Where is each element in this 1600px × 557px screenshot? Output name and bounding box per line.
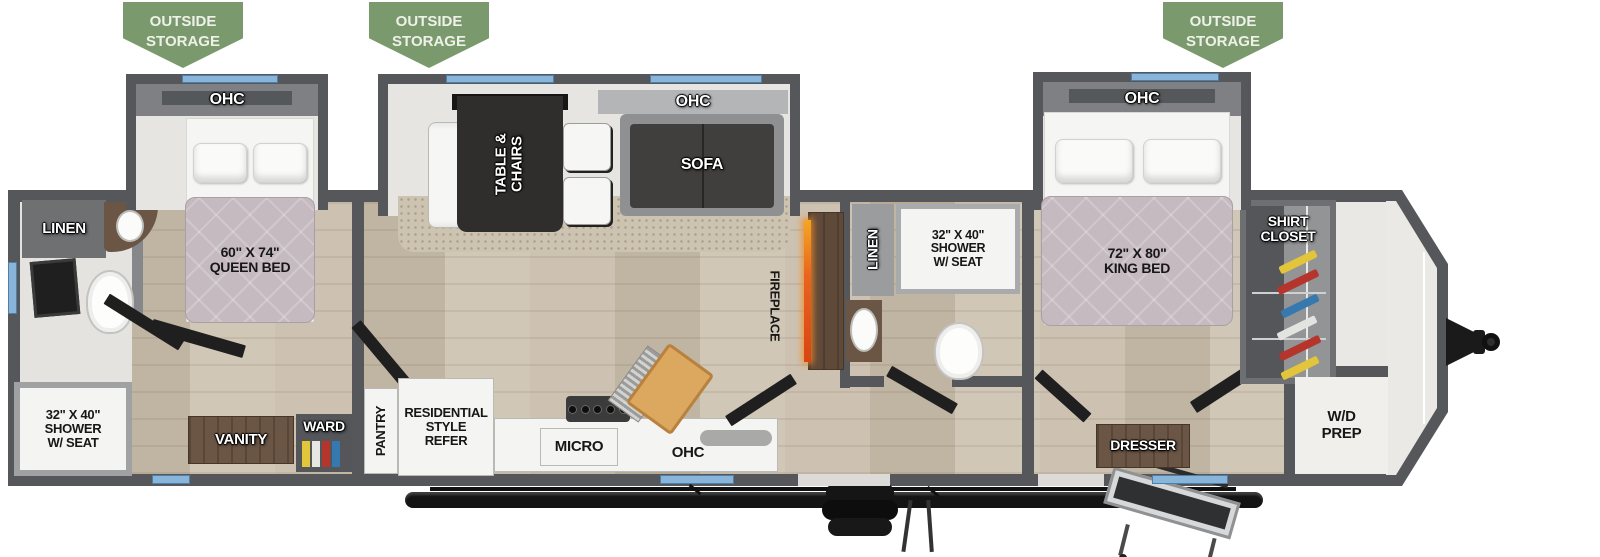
queen-bed-size: 60" X 74" (210, 245, 291, 260)
outside-storage-banner: OUTSIDE STORAGE (369, 2, 489, 68)
kitchen-ohc: OHC (648, 440, 728, 466)
dinette-table: TABLE & CHAIRS (457, 96, 563, 232)
outside-storage-banner: OUTSIDE STORAGE (123, 2, 243, 68)
bottom-window (660, 475, 734, 484)
rear-wall-window (8, 262, 17, 314)
rear-shower-size: 32" X 40" (45, 408, 102, 422)
rear-linen-cabinet: LINEN (22, 200, 106, 258)
banner-line2: STORAGE (146, 32, 220, 52)
burner (607, 406, 614, 413)
mid-linen-cabinet: LINEN (852, 204, 894, 296)
banner-line1: OUTSIDE (146, 12, 220, 32)
dinette-slide-window (446, 75, 554, 83)
outside-storage-banner: OUTSIDE STORAGE (1163, 2, 1283, 68)
king-slide-window (1131, 73, 1219, 81)
pantry: PANTRY (364, 388, 398, 474)
wd-prep-room: W/D PREP (1295, 377, 1388, 474)
queen-ohc-label: OHC (210, 91, 245, 108)
rear-bath-tv (30, 258, 81, 318)
refer-line3: REFER (404, 434, 487, 448)
wardrobe: WARD (296, 414, 352, 472)
microwave: MICRO (540, 428, 618, 466)
mid-linen-label: LINEN (865, 230, 880, 271)
mid-shower-line2: SHOWER (931, 242, 985, 256)
queen-slide-window (182, 75, 278, 83)
refer-line1: RESIDENTIAL (404, 406, 487, 420)
ward-clothes (302, 441, 310, 467)
queen-pillow (193, 143, 247, 183)
queen-ohc-cabinet: OHC (136, 84, 318, 116)
midbath-bottom-wall (840, 376, 884, 387)
shirt-closet-line2: CLOSET (1261, 229, 1316, 244)
king-bed-size: 72" X 80" (1104, 246, 1170, 261)
queen-mattress: 60" X 74" QUEEN BED (185, 197, 315, 323)
mid-sink-counter (846, 300, 882, 362)
refrigerator: RESIDENTIAL STYLE REFER (398, 378, 494, 476)
bottom-window (152, 475, 190, 484)
bottom-window (1152, 475, 1228, 484)
mid-toilet (934, 322, 984, 380)
banner-line2: STORAGE (1186, 32, 1260, 52)
fireplace-label-box: FIREPLACE (762, 244, 786, 368)
banner-line1: OUTSIDE (392, 12, 466, 32)
queen-pillow (253, 143, 307, 183)
hitch (1446, 316, 1502, 368)
king-pillow (1055, 139, 1133, 183)
king-bed: 72" X 80" KING BED (1044, 112, 1230, 325)
dinette-chair (563, 177, 611, 225)
midbath-right-wall (1022, 202, 1034, 474)
burner (569, 406, 576, 413)
queen-bed: 60" X 74" QUEEN BED (186, 118, 314, 322)
rear-shower-line3: W/ SEAT (45, 436, 102, 450)
table-chairs-line2: CHAIRS (510, 133, 526, 195)
bedroom-door-threshold (1038, 474, 1104, 486)
mid-shower: 32" X 40" SHOWER W/ SEAT (896, 204, 1020, 294)
king-ohc-cabinet: OHC (1043, 82, 1241, 116)
ward-clothes (312, 441, 320, 467)
dresser-label: DRESSER (1110, 438, 1176, 453)
burner (582, 406, 589, 413)
refer-line2: STYLE (404, 420, 487, 434)
banner-line2: STORAGE (392, 32, 466, 52)
mid-shower-size: 32" X 40" (931, 229, 985, 243)
king-pillow (1143, 139, 1221, 183)
entertainment-cabinet (808, 212, 844, 370)
kitchen-ohc-label: OHC (672, 445, 704, 461)
ward-label: WARD (303, 419, 345, 434)
rear-shower-line2: SHOWER (45, 422, 102, 436)
mid-sink-bowl (850, 308, 878, 352)
mid-shower-line3: W/ SEAT (931, 256, 985, 270)
queen-bed-name: QUEEN BED (210, 260, 291, 275)
step-leg (1207, 538, 1216, 557)
shirt-closet-line1: SHIRT (1261, 214, 1316, 229)
dresser: DRESSER (1096, 424, 1190, 468)
fireplace-flame-strip (804, 220, 811, 362)
dinette-chair (563, 123, 611, 171)
front-storage-floor (1334, 202, 1388, 366)
rear-linen-label: LINEN (42, 221, 86, 237)
rear-shower: 32" X 40" SHOWER W/ SEAT (14, 382, 132, 476)
king-mattress: 72" X 80" KING BED (1041, 196, 1233, 326)
step-leg (1118, 524, 1130, 556)
dinette-slide-window (650, 75, 762, 83)
king-ohc-label: OHC (1125, 90, 1160, 107)
banner-line1: OUTSIDE (1186, 12, 1260, 32)
table-chairs-line1: TABLE & (494, 133, 510, 195)
shirt-closet: SHIRT CLOSET (1240, 200, 1336, 384)
floorplan-canvas: OUTSIDE STORAGE OUTSIDE STORAGE OUTSIDE … (0, 0, 1600, 557)
micro-label: MICRO (555, 439, 604, 455)
wd-prep-line1: W/D (1322, 409, 1362, 425)
vanity: VANITY (188, 416, 294, 464)
sofa-label: SOFA (681, 156, 723, 173)
sofa: SOFA (620, 114, 784, 216)
rear-sink-bowl (116, 210, 144, 242)
ward-clothes (322, 441, 330, 467)
vanity-label: VANITY (215, 432, 267, 448)
entry-door-threshold (798, 474, 890, 486)
burner (594, 406, 601, 413)
entry-step (828, 518, 892, 536)
king-bed-name: KING BED (1104, 261, 1170, 276)
entry-step (822, 500, 898, 520)
living-ohc-label: OHC (676, 93, 711, 110)
wd-prep-line2: PREP (1322, 426, 1362, 442)
fireplace-label: FIREPLACE (767, 271, 781, 342)
living-ohc: OHC (598, 90, 788, 114)
pantry-label: PANTRY (374, 406, 388, 456)
ward-clothes (332, 441, 340, 467)
